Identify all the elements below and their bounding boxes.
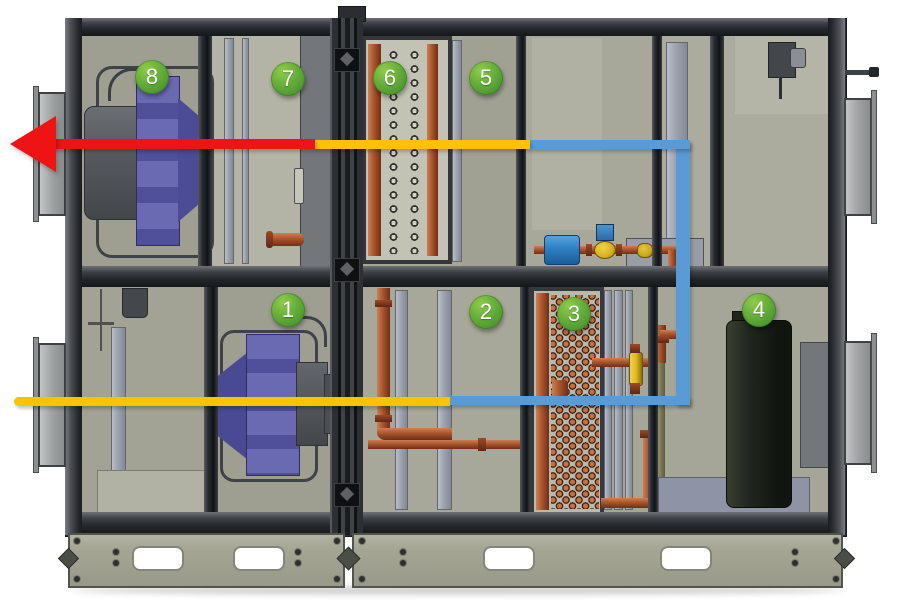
- badge-6: 6: [373, 61, 407, 95]
- badge-4: 4: [742, 293, 776, 327]
- base-screw: [833, 538, 839, 544]
- coil6-header-right: [427, 44, 438, 256]
- strut-top-3: [652, 34, 662, 266]
- badge-5-label: 5: [480, 67, 492, 89]
- actuator-stem: [779, 77, 782, 99]
- valve-yellow: [629, 352, 643, 386]
- strut-top-1: [198, 34, 212, 266]
- flow-red-shaft: [48, 139, 315, 149]
- badge-3: 3: [557, 297, 591, 331]
- badge-1: 1: [271, 293, 305, 327]
- base-screw: [359, 576, 365, 582]
- badge-3-label: 3: [568, 303, 580, 325]
- hinge-mid: [334, 258, 360, 282]
- ball-valve-brass: [594, 241, 616, 259]
- badge-8: 8: [135, 60, 169, 94]
- pipe-behind-ring: [478, 438, 486, 451]
- base-screw: [833, 576, 839, 582]
- pipe-zone2-ring2: [375, 415, 392, 422]
- base-screw: [334, 576, 340, 582]
- strut-top-2: [516, 34, 526, 266]
- pipe-fitting-1: [586, 244, 592, 256]
- hinge-bottom: [334, 483, 360, 507]
- zone7-strip-b: [242, 38, 249, 264]
- bracket-tbar: [88, 322, 114, 325]
- frame-bottom-rail: [65, 512, 845, 535]
- zone7-dark-panel: [300, 34, 331, 266]
- door-handle: [294, 168, 304, 204]
- tank: [726, 320, 792, 508]
- flange-bot-right: [844, 341, 872, 465]
- pipe-valve-run: [592, 358, 654, 367]
- base-bolt: [295, 549, 301, 555]
- badge-5: 5: [469, 61, 503, 95]
- valve-yellow-stub-top: [630, 344, 640, 353]
- base-bolt: [113, 560, 119, 566]
- badge-2: 2: [469, 295, 503, 329]
- base-slot-3: [483, 546, 535, 571]
- zone-mid-top-light: [532, 38, 602, 230]
- badge-8-label: 8: [146, 66, 158, 88]
- flange-plate-top-right: [871, 90, 877, 224]
- base-panel-right: [352, 533, 843, 588]
- center-mullion: [330, 18, 363, 535]
- pipe-zone2-vertical: [377, 288, 390, 436]
- pipe-zone2-ring1: [375, 300, 392, 307]
- flow-blue-top: [530, 140, 690, 149]
- zone7-strip-a: [224, 38, 234, 264]
- red-arrowhead-icon: [10, 116, 56, 172]
- badge-1-label: 1: [282, 299, 294, 321]
- valve-yellow-stub-bot: [630, 383, 640, 394]
- flange-top-right: [844, 98, 872, 216]
- frame-mid-rail: [65, 266, 845, 287]
- base-screw: [74, 538, 80, 544]
- small-motor: [122, 288, 148, 318]
- base-screw: [359, 538, 365, 544]
- base-slot-1: [132, 546, 184, 571]
- pipe-stub-ring: [266, 231, 273, 248]
- base-screw: [334, 538, 340, 544]
- frame-top-rail: [65, 18, 845, 36]
- base-slot-4: [660, 546, 712, 571]
- pipe-zone2-elbow: [377, 428, 452, 440]
- flow-yellow-bottom: [14, 397, 450, 406]
- badge-7: 7: [271, 62, 305, 96]
- pipe-stub-zone7: [268, 233, 304, 246]
- flange-plate-bot-right: [871, 333, 877, 473]
- base-screw: [74, 576, 80, 582]
- base-bolt: [295, 560, 301, 566]
- step-panel: [97, 470, 205, 514]
- flow-yellow-top: [315, 140, 530, 149]
- base-bolt: [792, 549, 798, 555]
- valve-actuator-knob: [596, 224, 614, 241]
- base-panel-left: [68, 533, 345, 588]
- strip-right-of-coil6: [452, 40, 462, 262]
- base-bolt: [113, 549, 119, 555]
- base-bolt: [400, 549, 406, 555]
- expansion-vessel: [544, 235, 580, 265]
- base-bolt: [792, 560, 798, 566]
- ahu-cutaway-diagram: 1 2 3 4 5 6 7 8: [0, 0, 900, 600]
- side-rod-cap: [869, 67, 879, 77]
- ball-valve-2: [637, 243, 653, 258]
- fan8-motor: [84, 106, 138, 220]
- flow-blue-vertical: [676, 140, 690, 405]
- base-slot-2: [233, 546, 285, 571]
- base-bolt: [400, 560, 406, 566]
- hanger-rod: [100, 289, 102, 351]
- fan8-wheel: [136, 76, 180, 246]
- frame-left-post: [65, 18, 82, 535]
- flow-blue-bottom: [450, 396, 690, 405]
- badge-6-label: 6: [384, 67, 396, 89]
- badge-4-label: 4: [753, 299, 765, 321]
- badge-7-label: 7: [282, 68, 294, 90]
- strut-top-4: [710, 34, 724, 266]
- actuator-cylinder: [790, 48, 806, 68]
- badge-2-label: 2: [480, 301, 492, 323]
- hinge-top: [334, 48, 360, 72]
- pipe-fitting-2: [616, 244, 622, 256]
- frame-right-post: [828, 18, 845, 535]
